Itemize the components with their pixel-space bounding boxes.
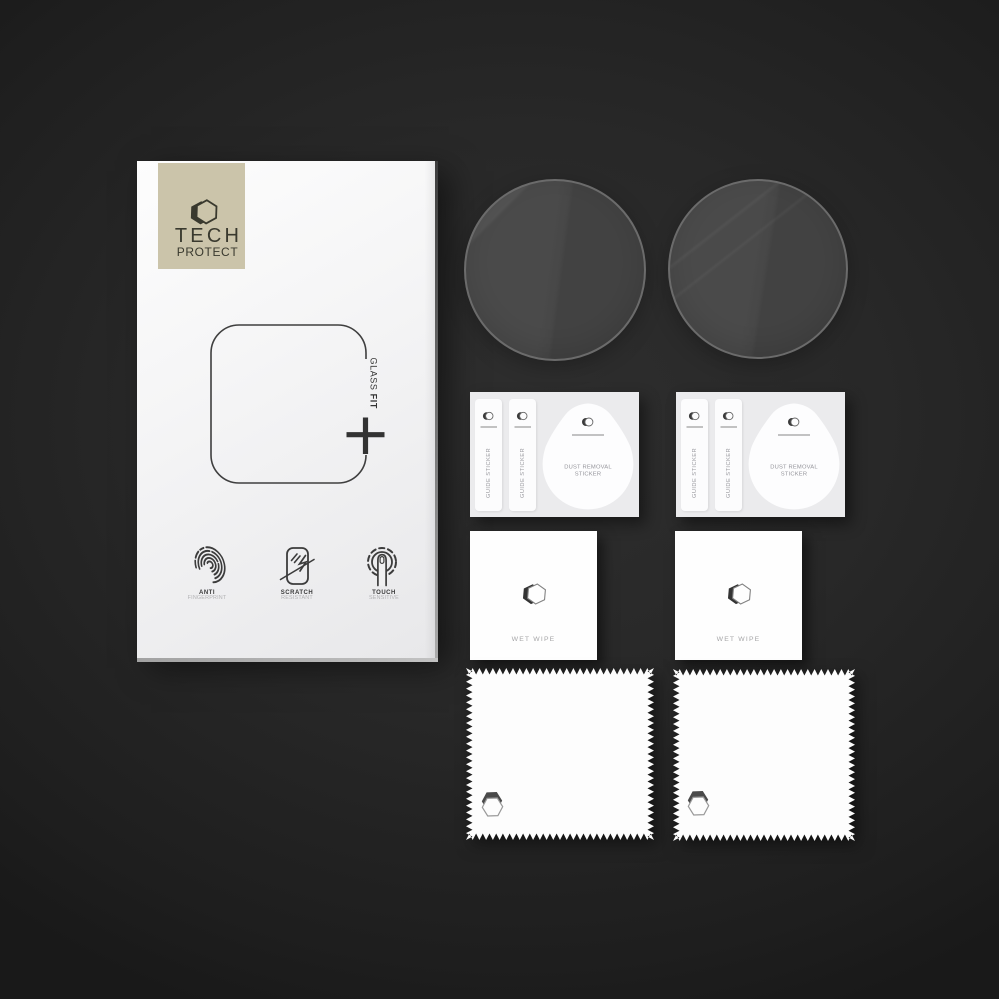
svg-text:DUST REMOVAL: DUST REMOVAL: [564, 464, 612, 470]
svg-text:STICKER: STICKER: [781, 471, 808, 477]
svg-text:DUST REMOVAL: DUST REMOVAL: [770, 464, 818, 470]
svg-text:GLASS FIT: GLASS FIT: [369, 358, 379, 409]
svg-text:STICKER: STICKER: [575, 471, 602, 477]
